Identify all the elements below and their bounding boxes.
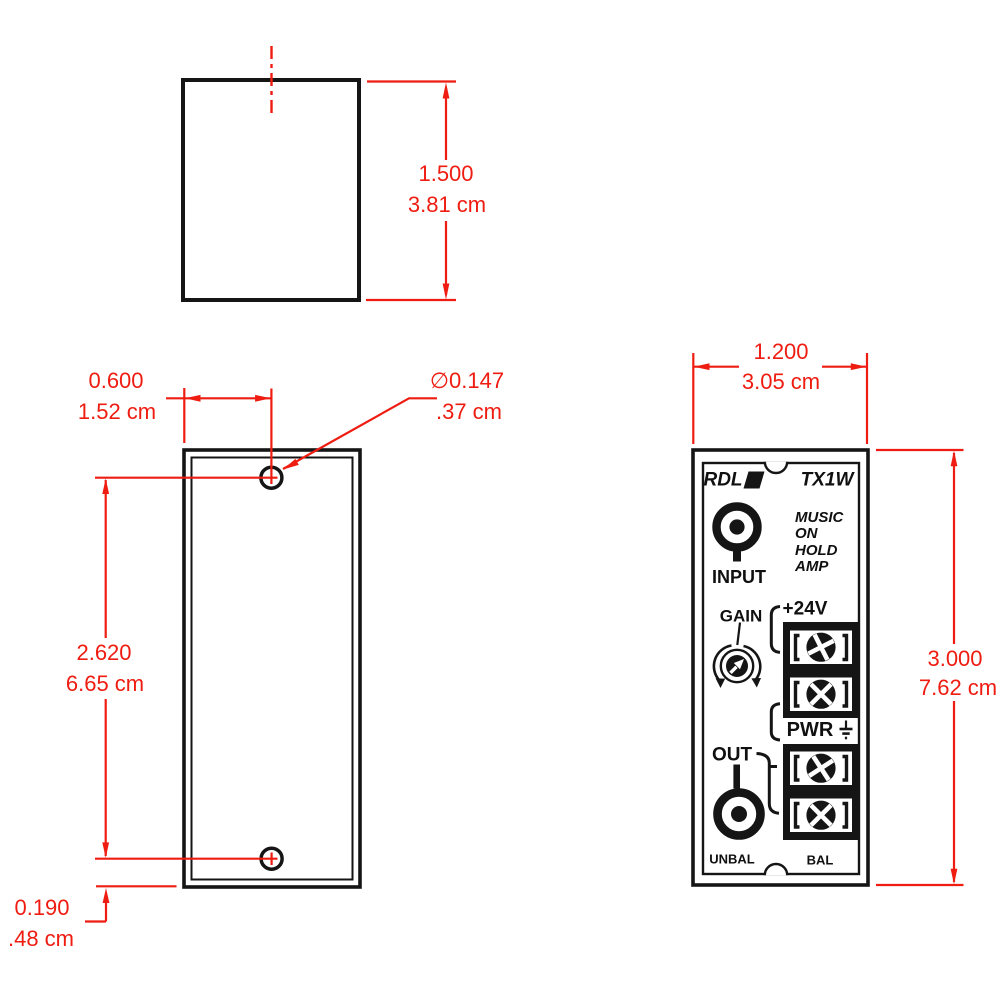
dim-panel-width-cm: 3.05 cm xyxy=(742,371,820,393)
dim-hole-offset-cm: 1.52 cm xyxy=(78,401,156,423)
description-line: AMP xyxy=(795,559,843,575)
dim-side-height-cm: 3.81 cm xyxy=(408,194,486,216)
terminal-block-power xyxy=(783,622,859,718)
dim-side-height-inches: 1.500 xyxy=(418,163,473,185)
input-label: INPUT xyxy=(712,568,766,586)
dim-hole-diameter-cm: .37 cm xyxy=(436,401,502,423)
bal-label: BAL xyxy=(807,854,834,867)
dim-hole-diameter-inches: ∅0.147 xyxy=(430,370,504,392)
dim-bottom-offset-cm: .48 cm xyxy=(8,928,74,950)
terminal-block-output xyxy=(783,744,859,840)
dim-bottom-offset xyxy=(85,886,177,921)
dim-hole-span-cm: 6.65 cm xyxy=(66,673,144,695)
screw-terminal xyxy=(806,680,835,709)
dim-panel-width xyxy=(693,353,867,444)
dim-panel-height-cm: 7.62 cm xyxy=(919,677,997,699)
brand-label: RDL xyxy=(703,471,742,490)
dim-hole-span-inches: 2.620 xyxy=(76,642,131,664)
dim-bottom-offset-inches: 0.190 xyxy=(14,897,69,919)
mounting-view xyxy=(85,388,437,922)
dim-panel-height-inches: 3.000 xyxy=(927,648,982,670)
gain-label: GAIN xyxy=(720,608,763,625)
pwr-label: PWR xyxy=(787,720,834,740)
panel-description: MUSIC ON HOLD AMP xyxy=(795,510,843,576)
screw-terminal xyxy=(806,801,835,830)
description-line: MUSIC xyxy=(795,510,843,526)
model-label: TX1W xyxy=(801,471,854,490)
dim-panel-width-inches: 1.200 xyxy=(753,341,808,363)
dim-hole-offset-inches: 0.600 xyxy=(88,370,143,392)
side-view xyxy=(183,46,456,300)
description-line: ON xyxy=(795,526,843,542)
mounting-plate-outline xyxy=(184,450,360,887)
description-line: HOLD xyxy=(795,543,843,559)
technical-drawing: 1.500 3.81 cm 0.600 1.52 cm ∅0.147 .37 c… xyxy=(0,0,1000,1000)
screw-terminal xyxy=(806,633,835,662)
dim-side-height xyxy=(366,82,456,301)
screw-terminal xyxy=(806,754,835,783)
supply-voltage-label: +24V xyxy=(783,600,828,619)
unbal-label: UNBAL xyxy=(709,853,755,866)
drawing-linework xyxy=(0,0,1000,1000)
out-label: OUT xyxy=(712,746,752,765)
